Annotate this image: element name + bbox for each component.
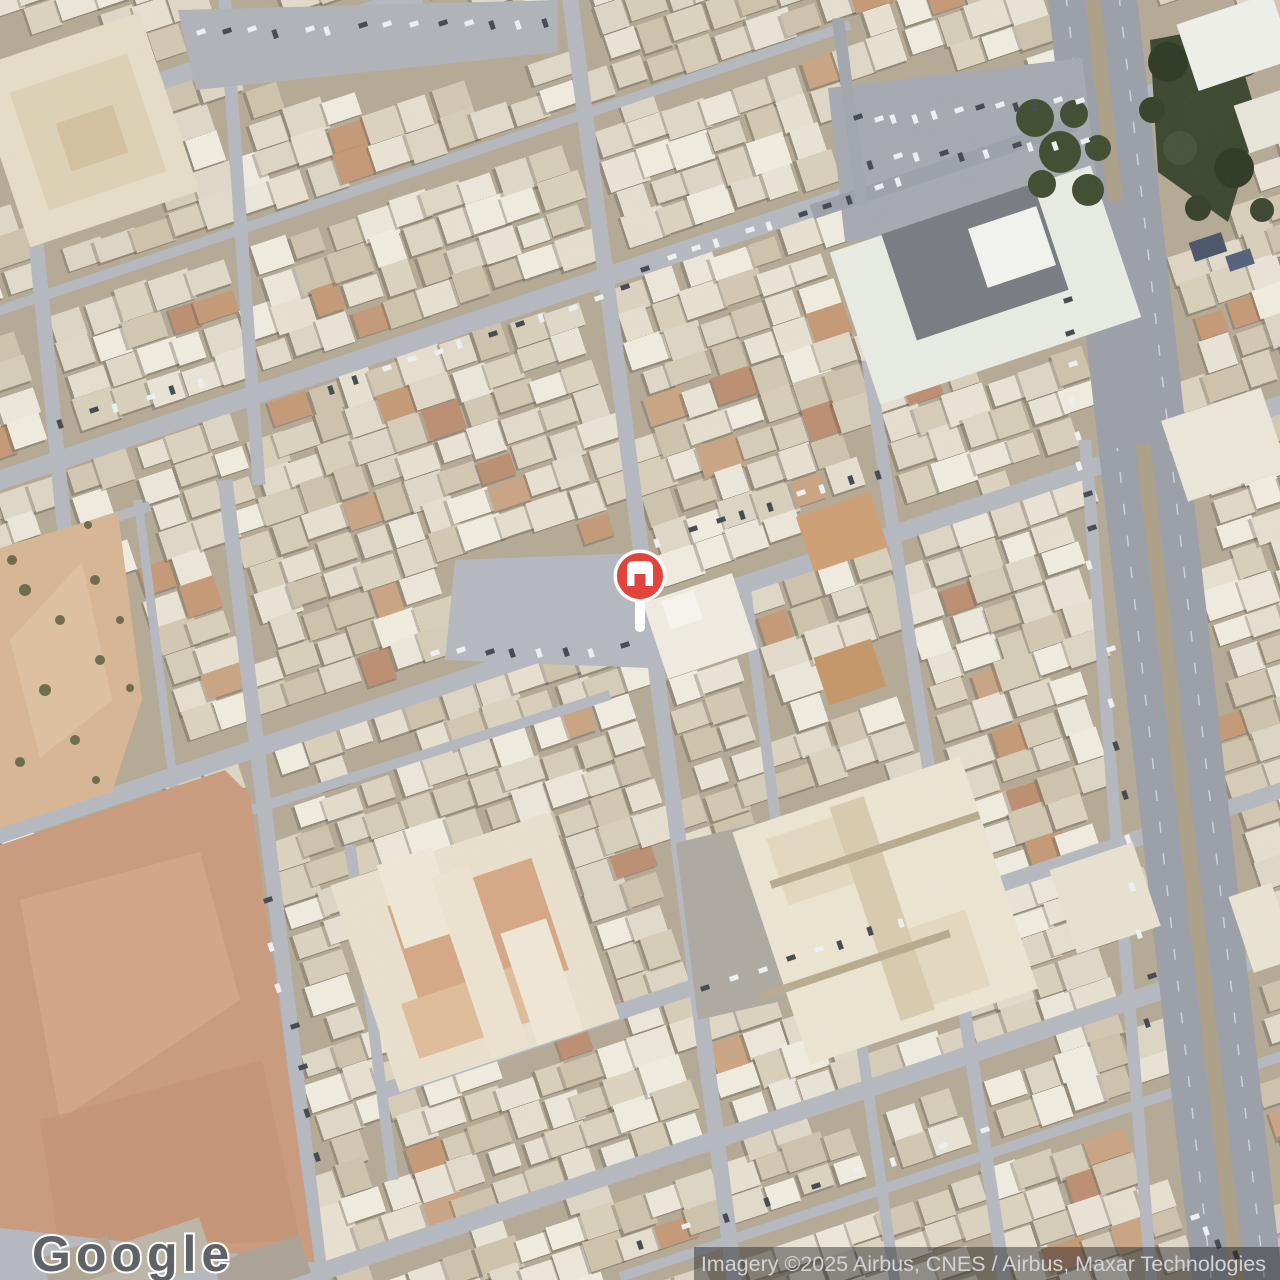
svg-text:Imagery ©2025 Airbus, CNES / A: Imagery ©2025 Airbus, CNES / Airbus, Max…	[701, 1252, 1266, 1276]
svg-text:Google: Google	[32, 1226, 234, 1280]
